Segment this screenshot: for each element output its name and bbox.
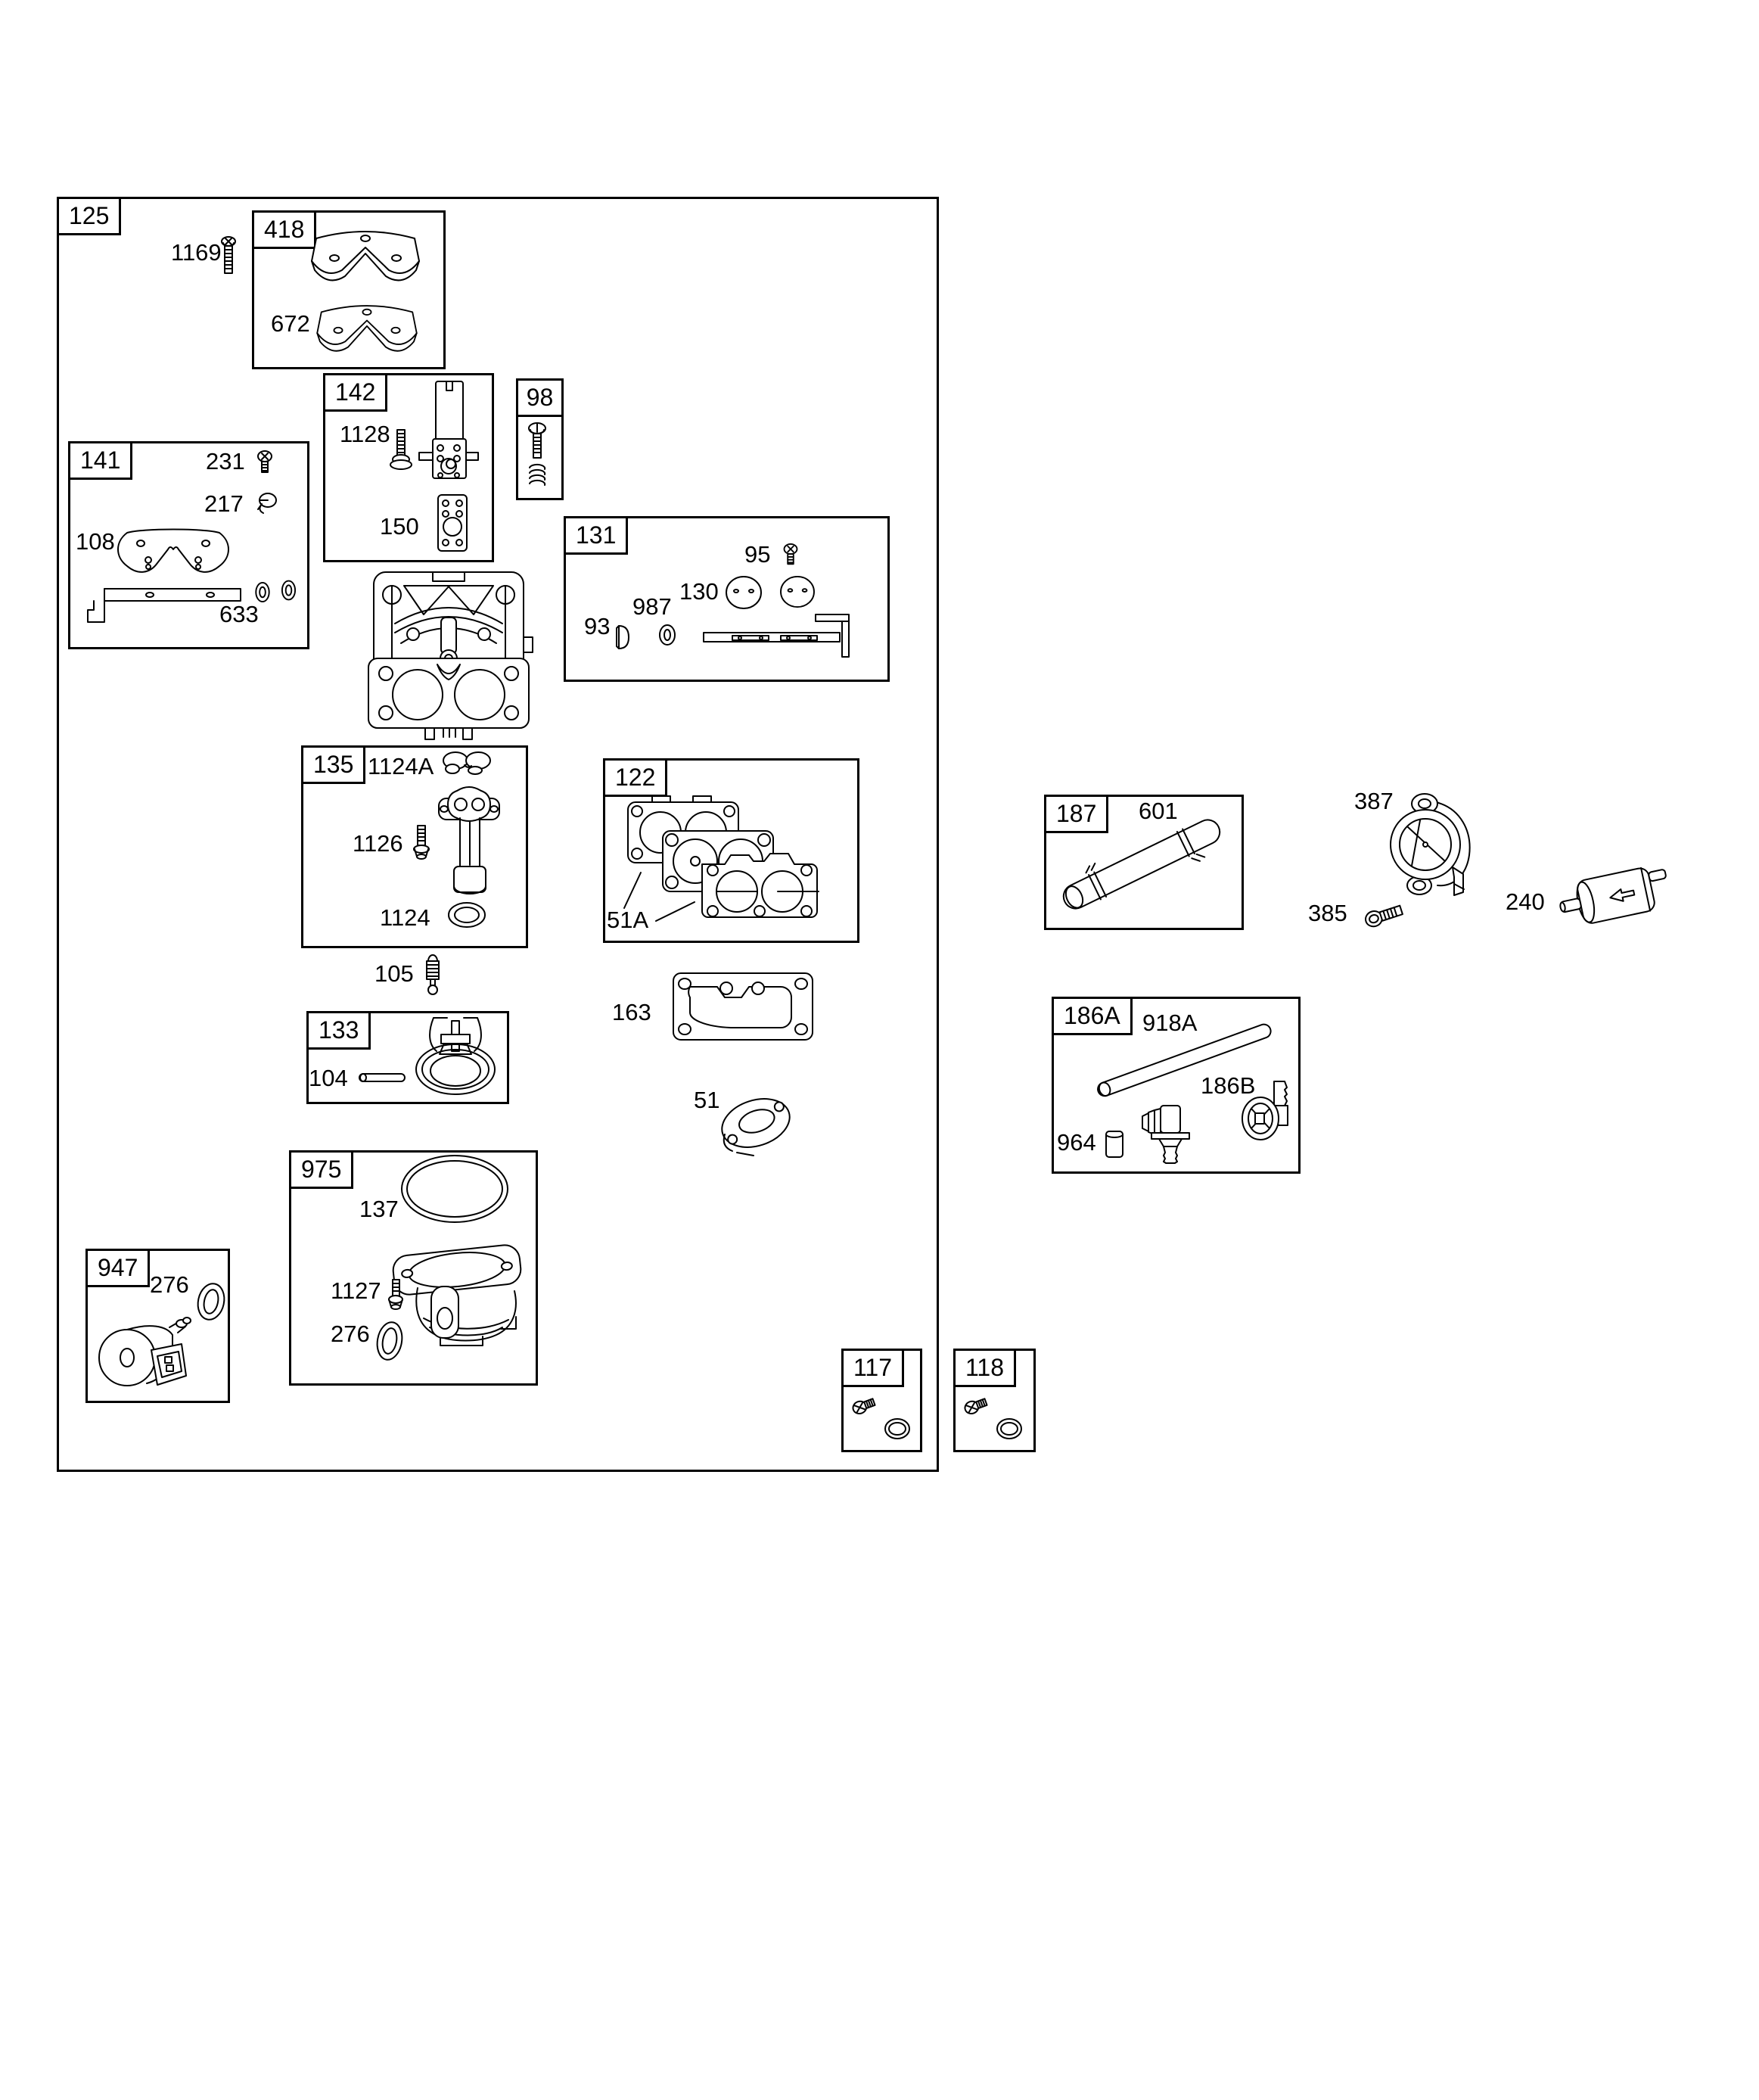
- group-label-133: 133: [306, 1011, 371, 1050]
- part-label-964: 964: [1057, 1131, 1096, 1154]
- screw-231-icon: [256, 450, 274, 476]
- oring-1124-icon: [447, 901, 487, 929]
- bolt-385-icon: [1362, 895, 1405, 931]
- spacer-51-icon: [717, 1090, 794, 1156]
- part-label-1127: 1127: [331, 1279, 381, 1302]
- part-label-385: 385: [1308, 901, 1347, 925]
- sleeve-964-icon: [1104, 1127, 1125, 1161]
- oring-117-icon: [884, 1417, 912, 1441]
- part-label-95: 95: [744, 543, 770, 566]
- group-label-131: 131: [564, 516, 628, 555]
- parts-diagram-page: 125 418 142 98 141 131 135 122 133 975 9…: [0, 0, 1759, 2100]
- tee-fitting-186A-icon: [1141, 1100, 1195, 1163]
- part-label-276-solenoid: 276: [150, 1273, 189, 1296]
- part-label-217: 217: [204, 492, 244, 515]
- oring-276-solenoid-icon: [196, 1281, 226, 1322]
- part-label-1128: 1128: [340, 422, 390, 446]
- group-label-975: 975: [289, 1150, 353, 1189]
- control-plate-108-icon: [112, 524, 235, 578]
- part-label-104: 104: [309, 1066, 348, 1090]
- group-label-122: 122: [603, 758, 667, 797]
- carburetor-body-icon: [365, 571, 533, 741]
- float-bowl-975-icon: [387, 1240, 527, 1352]
- cover-plate-672-icon: [310, 297, 424, 363]
- throttle-plate-130b-icon: [778, 575, 816, 608]
- bolt-118-icon: [962, 1391, 988, 1417]
- part-label-672: 672: [271, 312, 310, 335]
- group-label-125: 125: [57, 197, 121, 235]
- part-label-231: 231: [206, 450, 245, 473]
- part-label-987: 987: [632, 595, 672, 618]
- part-label-1126: 1126: [353, 832, 403, 855]
- fuel-hose-601-icon: [1050, 807, 1233, 922]
- screw-98-icon: [526, 422, 549, 462]
- group-label-118: 118: [953, 1349, 1016, 1387]
- part-label-1124A: 1124A: [368, 754, 434, 778]
- part-label-108: 108: [76, 530, 115, 553]
- fuel-valve-body-icon: [418, 380, 480, 484]
- group-label-142: 142: [323, 373, 387, 412]
- oring-137-icon: [399, 1153, 511, 1225]
- part-label-276-bowl: 276: [331, 1322, 370, 1346]
- screw-95-icon: [782, 543, 800, 568]
- part-label-137: 137: [359, 1197, 399, 1221]
- fuel-pump-tower-icon: [436, 782, 502, 901]
- part-label-1169: 1169: [171, 241, 222, 264]
- group-label-141: 141: [68, 441, 132, 480]
- bolt-117-icon: [850, 1391, 876, 1417]
- bracket-141-icon: [82, 581, 250, 627]
- clamp-217-icon: [256, 490, 278, 515]
- oring-118-icon: [996, 1417, 1024, 1441]
- float-pin-104-icon: [357, 1071, 407, 1084]
- part-label-150: 150: [380, 515, 419, 538]
- group-label-117: 117: [841, 1349, 904, 1387]
- washer-633b-icon: [281, 578, 297, 602]
- gasket-1124A-icon: [442, 750, 492, 777]
- part-label-387: 387: [1354, 789, 1394, 813]
- screw-1128-icon: [390, 428, 412, 471]
- fuel-pump-387-icon: [1389, 792, 1478, 901]
- cover-plate-icon: [309, 222, 422, 294]
- fuel-solenoid-icon: [97, 1314, 192, 1389]
- part-label-130: 130: [679, 580, 719, 603]
- oring-276-bowl-icon: [375, 1320, 404, 1362]
- screw-1127-icon: [384, 1278, 407, 1310]
- elbow-fitting-186B-icon: [1239, 1077, 1290, 1143]
- part-label-93: 93: [584, 614, 610, 638]
- throttle-plate-130-icon: [725, 575, 763, 610]
- part-label-51: 51: [694, 1088, 719, 1112]
- washer-987-icon: [657, 624, 677, 647]
- group-label-98: 98: [516, 378, 564, 417]
- leader-lines-51A: [620, 866, 704, 927]
- plate-150-icon: [437, 493, 468, 552]
- needle-valve-105-icon: [423, 952, 443, 996]
- screw-1169-icon: [219, 236, 238, 278]
- group-label-135: 135: [301, 745, 365, 784]
- washer-633-icon: [254, 581, 271, 603]
- spring-98-icon: [526, 462, 549, 490]
- screw-1126-icon: [411, 824, 432, 860]
- float-assembly-icon: [411, 1015, 500, 1096]
- group-label-947: 947: [85, 1249, 150, 1287]
- fuel-filter-240-icon: [1557, 857, 1672, 935]
- bowl-gasket-163-icon: [672, 972, 816, 1043]
- part-label-1124: 1124: [380, 906, 430, 929]
- throttle-shaft-icon: [702, 610, 852, 658]
- group-label-418: 418: [252, 210, 316, 249]
- part-label-240: 240: [1506, 890, 1545, 913]
- part-label-105: 105: [374, 962, 414, 985]
- part-label-163: 163: [612, 1000, 651, 1024]
- plug-93-icon: [614, 624, 631, 651]
